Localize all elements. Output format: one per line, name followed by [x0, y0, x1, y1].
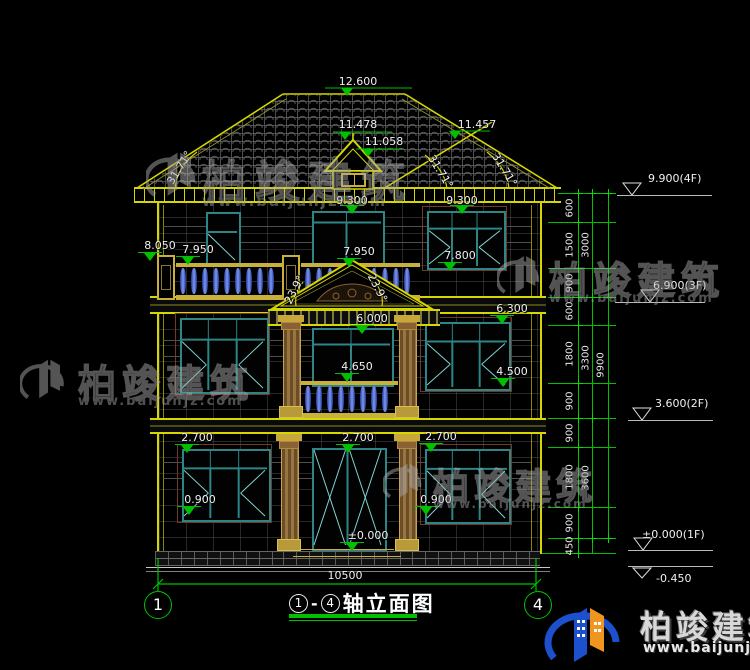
baluster [327, 268, 333, 294]
chain-tick [574, 264, 583, 273]
window-2f-left [180, 318, 269, 394]
column-capital [276, 434, 302, 441]
column-capital-echinus [397, 441, 417, 449]
porch-step [293, 556, 401, 557]
chain-dim-label: 1800 [565, 464, 576, 489]
baluster [268, 268, 274, 294]
chain-dim-label: 3600 [581, 465, 592, 490]
dormer-window [341, 173, 366, 187]
dim-label: 11.058 [365, 136, 404, 148]
baluster [360, 268, 366, 294]
title-underline [289, 614, 417, 618]
baluster [338, 386, 344, 412]
baluster [360, 386, 366, 412]
baluster [246, 268, 252, 294]
door-3f-left [206, 212, 241, 266]
dim-label: 12.600 [339, 76, 378, 88]
title-dash: - [311, 594, 318, 613]
dormer-window-mullion [354, 175, 355, 185]
baluster [257, 268, 263, 294]
porch-plinth [283, 551, 412, 566]
dim-arrow-icon [491, 378, 515, 387]
column-shaft [399, 449, 417, 539]
column-capital [394, 434, 420, 441]
column-base [395, 406, 419, 418]
dim-label: 2.700 [181, 432, 213, 444]
level-line-3f [615, 302, 705, 303]
level-label-1f: ±0.000(1F) [642, 528, 705, 541]
level-line-ground [628, 566, 713, 567]
chain-tick [574, 218, 583, 227]
level-line-2f [628, 420, 713, 421]
column-base [277, 539, 301, 551]
balustrade-bottom-rail [301, 295, 420, 300]
dim-arrow-icon [443, 131, 467, 139]
column-capital [278, 315, 304, 322]
baluster [349, 386, 355, 412]
chain-tick [574, 321, 583, 330]
footer-url: www.baijunjz.com [643, 640, 750, 656]
baluster [305, 386, 311, 412]
chain-tick [574, 414, 583, 423]
dim-label: 2.700 [425, 431, 457, 443]
baluster [224, 268, 230, 294]
level-marker-triangle-icon [633, 568, 651, 578]
column-capital-echinus [279, 441, 299, 449]
level-line-4f [617, 195, 712, 196]
ground-line [146, 567, 550, 568]
dim-arrow-icon [340, 542, 364, 551]
chain-tick [574, 379, 583, 388]
level-label-4f: 9.900(4F) [648, 172, 701, 185]
watermark-logo-icon [20, 353, 68, 408]
dim-arrow-icon [176, 256, 200, 265]
axis-bubble-1: 1 [144, 591, 172, 619]
baluster [349, 268, 355, 294]
dim-arrow-icon [438, 262, 462, 271]
cad-elevation-drawing: 9.900(4F) 6.900(3F) 3.600(2F) ±0.000(1F)… [0, 0, 750, 670]
level-marker-triangle-icon [623, 183, 641, 195]
column-capital-echinus [397, 322, 417, 330]
chain-tick [574, 503, 583, 512]
chain-dim-label: 1800 [565, 341, 576, 366]
title-underline-thin [289, 620, 417, 621]
dim-label: 7.950 [343, 246, 375, 258]
baluster [191, 268, 197, 294]
baluster [316, 268, 322, 294]
dim-label: 2.700 [342, 432, 374, 444]
dim-label: 0.900 [184, 494, 216, 506]
dim-label: 8.050 [144, 240, 176, 252]
chain-dim-label: 900 [565, 391, 576, 410]
dim-label: 7.950 [182, 244, 214, 256]
dim-label: 11.478 [339, 119, 378, 131]
baluster [213, 268, 219, 294]
level-label-2f: 3.600(2F) [655, 397, 708, 410]
dim-chain-inner-line [578, 193, 579, 553]
level-label-3f: 6.900(3F) [653, 279, 706, 292]
chain-dim-label: 900 [565, 423, 576, 442]
column-shaft [399, 330, 417, 406]
overall-width-dim: 10500 [328, 570, 363, 582]
plinth-brick-left [155, 551, 283, 566]
chain-dim-label: 1500 [565, 232, 576, 257]
dim-label: 7.800 [444, 250, 476, 262]
baluster [404, 268, 410, 294]
chain-tick [604, 534, 613, 543]
title-axis-start: 1 [289, 594, 308, 613]
chain-dim-label: 3000 [581, 232, 592, 257]
dim-arrow-icon [419, 443, 443, 452]
plinth-brick-right [412, 551, 540, 566]
dim-arrow-icon [490, 315, 514, 324]
column-capital [394, 315, 420, 322]
level-line-1f [628, 550, 713, 551]
dim-arrow-icon [333, 132, 357, 140]
chain-dim-label: 450 [565, 536, 576, 555]
column-base [279, 406, 303, 418]
baluster [235, 268, 241, 294]
column-shaft [283, 330, 301, 406]
chain-tick [588, 534, 597, 543]
title-axis-end: 4 [321, 594, 340, 613]
dim-label: 9.300 [446, 195, 478, 207]
baluster [371, 386, 377, 412]
baluster [180, 268, 186, 294]
dim-label: 0.900 [420, 494, 452, 506]
chain-dim-label: 600 [565, 198, 576, 217]
dim-label: 4.500 [496, 366, 528, 378]
dim-label: 9.300 [336, 195, 368, 207]
column-base [395, 539, 419, 551]
chain-dim-label: 9900 [596, 352, 607, 377]
level-marker-triangle-icon [633, 408, 651, 420]
dim-arrow-icon [335, 373, 359, 382]
baluster [338, 268, 344, 294]
dim-arrow-icon [138, 252, 162, 261]
chain-dim-label: 600 [565, 301, 576, 320]
dim-chain-middle-line [592, 193, 593, 553]
chain-dim-label: 3300 [581, 345, 592, 370]
baluster [202, 268, 208, 294]
chain-tick [604, 189, 613, 198]
footer-logo: 柏竣建筑 www.baijunjz.com [540, 596, 750, 670]
chain-tick [574, 443, 583, 452]
dim-label: 11.457 [458, 119, 497, 131]
baluster [316, 386, 322, 412]
chain-tick [588, 189, 597, 198]
baluster [327, 386, 333, 412]
level-label-ground: -0.450 [656, 572, 691, 585]
dim-arrow-icon [350, 325, 374, 334]
dim-label: 6.000 [356, 313, 388, 325]
column-capital-echinus [281, 322, 301, 330]
chain-tick [588, 414, 597, 423]
dim-arrow-icon [336, 444, 360, 453]
baluster [393, 268, 399, 294]
wall-inner-edge-right [531, 205, 532, 551]
level-marker-triangles [623, 183, 659, 578]
dim-chain-outer-line [608, 193, 609, 538]
dim-label: 4.650 [341, 361, 373, 373]
dim-arrow-icon [356, 149, 380, 157]
balustrade-bottom-rail [176, 295, 283, 300]
dim-arrow-icon [335, 88, 359, 96]
dim-arrow-icon [337, 258, 361, 267]
chain-dim-label: 900 [565, 273, 576, 292]
column-shaft [281, 449, 299, 539]
balustrade-bottom-rail [301, 413, 398, 418]
balcony-pedestal [157, 255, 175, 300]
dim-arrow-icon [177, 506, 201, 515]
chain-tick [574, 189, 583, 198]
chain-tick [588, 293, 597, 302]
dim-label: ±0.000 [348, 530, 389, 542]
dim-arrow-icon [175, 444, 199, 453]
brand-logo-icon [540, 596, 636, 668]
dim-label: 6.300 [496, 303, 528, 315]
baluster [382, 386, 388, 412]
dim-arrow-icon [414, 506, 438, 515]
chain-dim-label: 900 [565, 513, 576, 532]
